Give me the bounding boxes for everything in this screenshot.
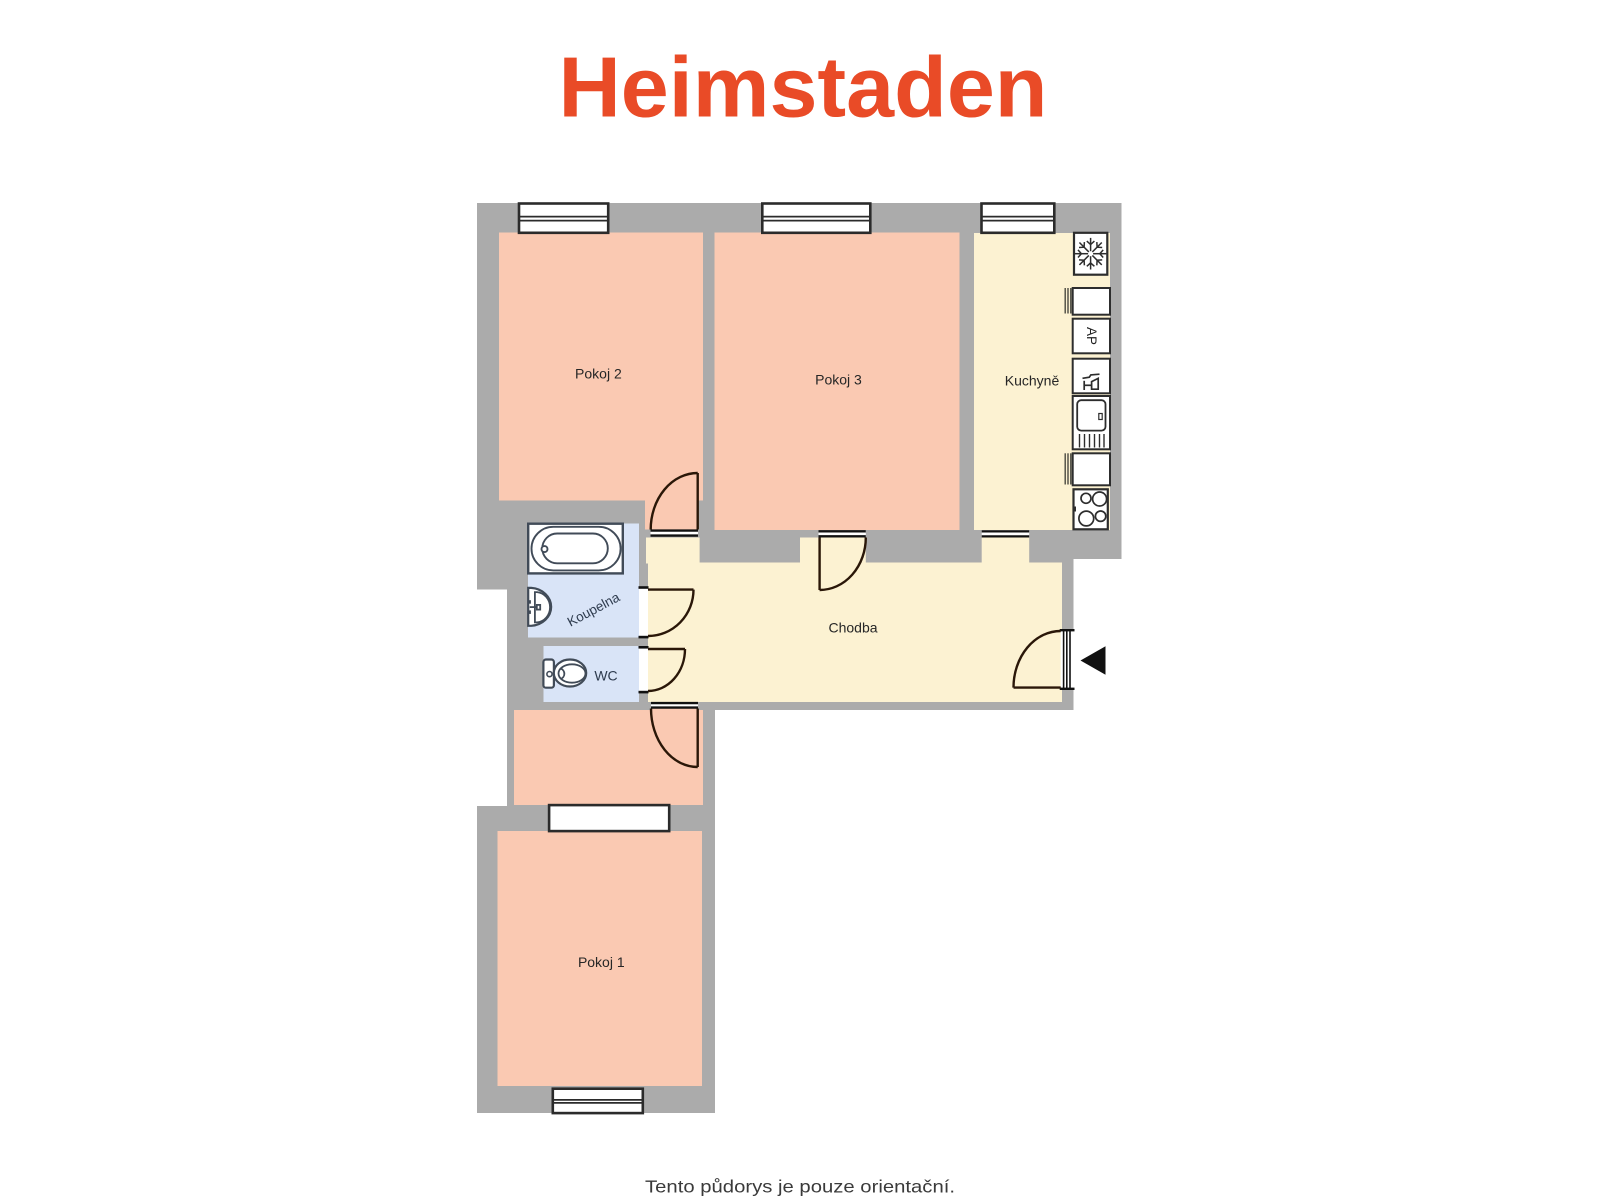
svg-text:Chodba: Chodba [828, 619, 877, 635]
svg-text:AP: AP [1084, 327, 1099, 345]
svg-text:Pokoj 2: Pokoj 2 [575, 365, 622, 381]
svg-text:Kuchyně: Kuchyně [1005, 372, 1060, 388]
svg-text:Tento půdorys je pouze orienta: Tento půdorys je pouze orientační. [645, 1176, 955, 1196]
svg-text:Heimstaden: Heimstaden [559, 41, 1048, 136]
svg-text:WC: WC [594, 667, 617, 683]
svg-text:Pokoj 3: Pokoj 3 [815, 372, 862, 388]
svg-text:Pokoj 1: Pokoj 1 [578, 954, 625, 970]
